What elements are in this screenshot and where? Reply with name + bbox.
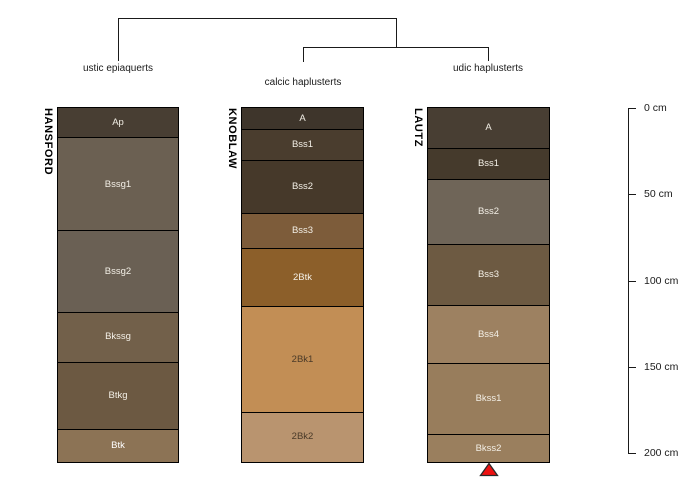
dendrogram-link-line [118,18,119,61]
horizon-label: 2Btk [293,273,312,283]
profile-id-lautz: LAUTZ [408,108,424,408]
horizon-label: Bss2 [478,207,499,217]
horizon-knoblaw-bss3: Bss3 [242,213,363,248]
depth-tick [628,453,636,454]
horizon-knoblaw-bss2: Bss2 [242,160,363,213]
horizon-hansford-ap: Ap [58,108,178,137]
horizon-label: Bkss2 [476,444,502,454]
dendrogram-link-line [488,47,489,61]
depth-tick-label-100-cm: 100 cm [644,275,678,287]
depth-tick [628,194,636,195]
horizon-lautz-bkss1: Bkss1 [428,363,549,434]
horizon-knoblaw-2btk: 2Btk [242,248,363,307]
horizon-label: Bss3 [292,226,313,236]
horizon-label: Bkssg [105,332,131,342]
horizon-knoblaw-a: A [242,108,363,129]
profile-id-hansford: HANSFORD [38,108,54,408]
horizon-label: Ap [112,118,124,128]
horizon-label: A [299,114,305,124]
horizon-hansford-bssg2: Bssg2 [58,230,178,311]
horizon-label: 2Bk1 [292,355,314,365]
taxon-label-calcic-haplusterts: calcic haplusterts [265,77,342,88]
horizon-label: Btk [111,441,125,451]
depth-tick [628,367,636,368]
horizon-label: Bssg1 [105,180,131,190]
horizon-label: Bss2 [292,182,313,192]
profile-id-knoblaw: KNOBLAW [222,108,238,408]
depth-tick [628,281,636,282]
horizon-lautz-bkss2: Bkss2 [428,434,549,462]
dendrogram-link-line [303,47,489,48]
dendrogram-link-line [303,47,304,62]
dendrogram-link-line [396,18,397,47]
taxon-label-udic-haplusterts: udic haplusterts [453,63,523,74]
horizon-hansford-bssg1: Bssg1 [58,137,178,230]
horizon-label: Bss4 [478,330,499,340]
horizon-label: Btkg [108,391,127,401]
horizon-lautz-bss2: Bss2 [428,179,549,245]
depth-tick-label-150-cm: 150 cm [644,361,678,373]
horizon-label: Bss1 [478,159,499,169]
taxon-label-ustic-epiaquerts: ustic epiaquerts [83,63,153,74]
horizon-lautz-bss1: Bss1 [428,148,549,179]
horizon-knoblaw-bss1: Bss1 [242,129,363,160]
horizon-label: Bkss1 [476,394,502,404]
depth-tick-label-0-cm: 0 cm [644,102,667,114]
depth-tick-label-200-cm: 200 cm [644,447,678,459]
horizon-hansford-btkg: Btkg [58,362,178,429]
horizon-label: A [485,123,491,133]
horizon-knoblaw-2bk1: 2Bk1 [242,306,363,411]
horizon-knoblaw-2bk2: 2Bk2 [242,412,363,462]
depth-tick-label-50-cm: 50 cm [644,188,673,200]
horizon-lautz-a: A [428,108,549,148]
dendrogram-link-line [118,18,397,19]
horizon-lautz-bss3: Bss3 [428,244,549,304]
horizon-label: Bss1 [292,140,313,150]
soil-profile-figure: HANSFORDApBssg1Bssg2BkssgBtkgBtkKNOBLAWA… [0,0,700,500]
red-triangle-marker [479,462,499,477]
depth-tick [628,108,636,109]
horizon-label: Bssg2 [105,267,131,277]
horizon-label: Bss3 [478,270,499,280]
horizon-hansford-btk: Btk [58,429,178,462]
horizon-hansford-bkssg: Bkssg [58,312,178,362]
horizon-lautz-bss4: Bss4 [428,305,549,364]
horizon-label: 2Bk2 [292,432,314,442]
